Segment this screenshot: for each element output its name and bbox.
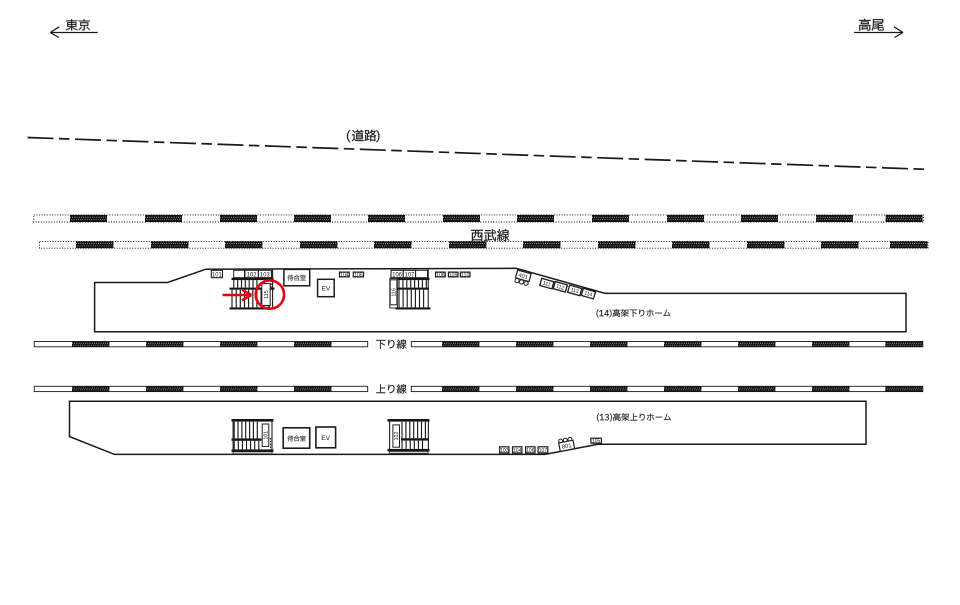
svg-text:102: 102 bbox=[247, 271, 257, 278]
svg-text:106: 106 bbox=[526, 448, 534, 454]
svg-text:103: 103 bbox=[500, 448, 508, 454]
svg-text:109: 109 bbox=[449, 273, 457, 279]
svg-text:103: 103 bbox=[260, 271, 270, 278]
svg-text:105: 105 bbox=[592, 439, 600, 445]
svg-text:102: 102 bbox=[394, 432, 400, 441]
svg-text:110: 110 bbox=[461, 273, 469, 279]
svg-text:EV: EV bbox=[322, 285, 331, 292]
svg-text:101: 101 bbox=[212, 271, 222, 278]
svg-text:101: 101 bbox=[263, 431, 269, 440]
svg-text:EV: EV bbox=[321, 435, 330, 442]
svg-text:116: 116 bbox=[391, 288, 397, 296]
svg-text:115: 115 bbox=[264, 290, 270, 298]
svg-text:105: 105 bbox=[354, 273, 362, 279]
svg-text:108: 108 bbox=[436, 273, 444, 279]
svg-text:106: 106 bbox=[392, 271, 402, 278]
svg-text:107: 107 bbox=[405, 271, 415, 278]
svg-text:104: 104 bbox=[340, 273, 348, 279]
svg-text:104: 104 bbox=[513, 448, 521, 454]
svg-text:107: 107 bbox=[539, 448, 547, 454]
